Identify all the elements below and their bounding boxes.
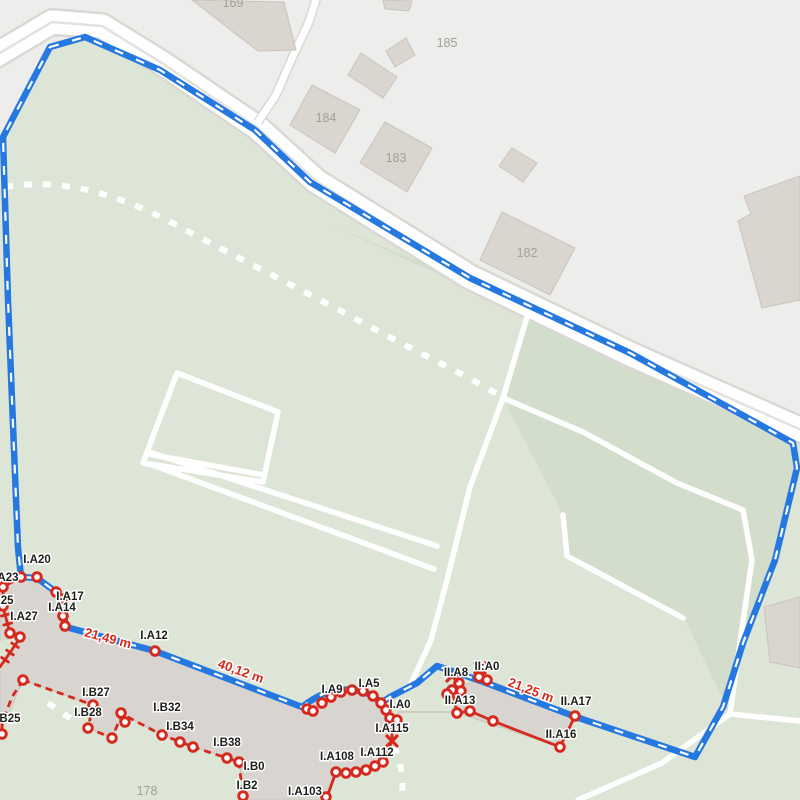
survey-point[interactable] bbox=[117, 709, 126, 718]
survey-point[interactable] bbox=[453, 709, 462, 718]
building bbox=[383, 0, 412, 11]
survey-point[interactable] bbox=[121, 718, 130, 727]
survey-point-label: I.A27 bbox=[10, 611, 38, 623]
survey-point[interactable] bbox=[371, 762, 380, 771]
survey-point-label: I.A112 bbox=[360, 747, 393, 759]
survey-point[interactable] bbox=[19, 676, 28, 685]
survey-point[interactable] bbox=[33, 573, 42, 582]
survey-point[interactable] bbox=[318, 699, 327, 708]
survey-point-label: I.A5 bbox=[358, 678, 380, 690]
survey-point-label: I.A20 bbox=[23, 554, 51, 566]
survey-point-label: II.A17 bbox=[561, 696, 592, 708]
survey-point-label: I.A25 bbox=[0, 595, 14, 607]
survey-point-label: I.A108 bbox=[320, 751, 354, 763]
survey-point-label: I.B25 bbox=[0, 713, 21, 725]
building-label: 182 bbox=[517, 246, 538, 260]
survey-point-label: I.A23 bbox=[0, 572, 19, 584]
survey-point-label: I.A9 bbox=[321, 684, 342, 696]
survey-point[interactable] bbox=[0, 730, 6, 739]
survey-point[interactable] bbox=[342, 769, 351, 778]
survey-point[interactable] bbox=[158, 731, 167, 740]
building-label: 183 bbox=[386, 151, 407, 165]
survey-point[interactable] bbox=[362, 766, 371, 775]
building-label: 169 bbox=[223, 0, 244, 10]
survey-point[interactable] bbox=[489, 717, 498, 726]
survey-point[interactable] bbox=[6, 629, 15, 638]
building-label: 184 bbox=[316, 111, 337, 125]
survey-point[interactable] bbox=[352, 768, 361, 777]
survey-point-label: I.B0 bbox=[243, 761, 264, 773]
survey-point-label: I.B32 bbox=[153, 702, 181, 714]
survey-point-label: I.B28 bbox=[74, 707, 102, 719]
survey-point[interactable] bbox=[332, 768, 341, 777]
survey-point-label: I.B38 bbox=[213, 737, 241, 749]
survey-point-label: II.A16 bbox=[546, 729, 577, 741]
survey-point-label: I.B27 bbox=[82, 687, 110, 699]
building-label: 185 bbox=[437, 36, 458, 50]
survey-point[interactable] bbox=[235, 758, 244, 767]
survey-point-label: I.B2 bbox=[236, 780, 257, 792]
survey-point[interactable] bbox=[348, 686, 357, 695]
survey-point[interactable] bbox=[466, 707, 475, 716]
survey-point-label: I.A14 bbox=[48, 602, 76, 614]
survey-point[interactable] bbox=[61, 622, 70, 631]
survey-point-label: I.A103 bbox=[288, 786, 322, 798]
survey-point[interactable] bbox=[457, 687, 466, 696]
survey-point-label: I.B34 bbox=[166, 721, 194, 733]
survey-point-label: I.A12 bbox=[140, 630, 168, 642]
survey-point-label: II.A8 bbox=[444, 667, 469, 679]
survey-point[interactable] bbox=[16, 633, 25, 642]
map-svg: 169185184183182178I.A20I.A23I.A17I.A25I.… bbox=[0, 0, 800, 800]
survey-point[interactable] bbox=[239, 792, 248, 800]
survey-point[interactable] bbox=[189, 743, 198, 752]
survey-point[interactable] bbox=[571, 712, 580, 721]
building bbox=[764, 597, 800, 668]
survey-point-label: II:A0 bbox=[475, 661, 500, 673]
survey-point-label: I.A0 bbox=[389, 699, 410, 711]
map-canvas[interactable]: 169185184183182178I.A20I.A23I.A17I.A25I.… bbox=[0, 0, 800, 800]
survey-point[interactable] bbox=[322, 793, 331, 800]
survey-point[interactable] bbox=[176, 738, 185, 747]
survey-point[interactable] bbox=[151, 647, 160, 656]
survey-point[interactable] bbox=[369, 692, 378, 701]
building-label: 178 bbox=[137, 784, 158, 798]
survey-point[interactable] bbox=[223, 754, 232, 763]
survey-point[interactable] bbox=[108, 734, 117, 743]
survey-point[interactable] bbox=[556, 743, 565, 752]
survey-point[interactable] bbox=[309, 707, 318, 716]
survey-point-label: II.A13 bbox=[445, 695, 476, 707]
survey-point-label: I.A115 bbox=[375, 723, 409, 735]
survey-point[interactable] bbox=[84, 724, 93, 733]
survey-point[interactable] bbox=[483, 676, 492, 685]
